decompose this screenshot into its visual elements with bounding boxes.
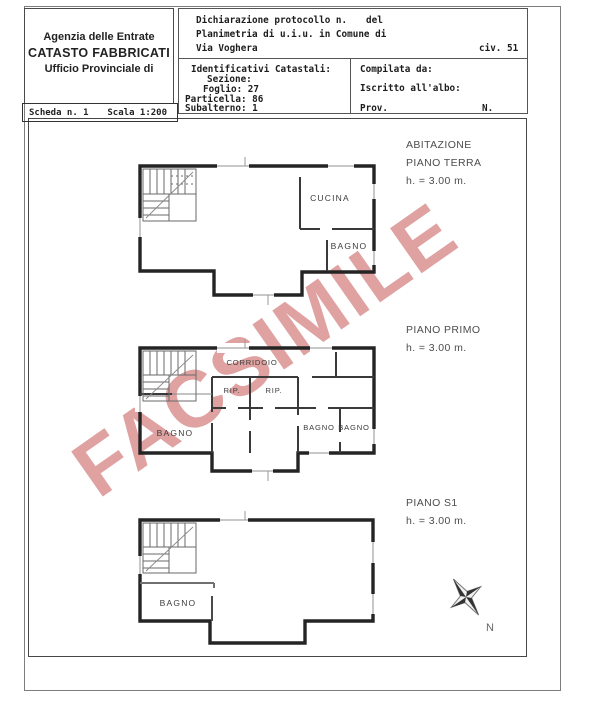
stairs-icon-s1 bbox=[143, 523, 196, 573]
office-line: Ufficio Provinciale di bbox=[25, 63, 173, 75]
room-label-rip2: RIP. bbox=[266, 386, 283, 395]
compiler-section: Compilata da: Iscritto all'albo: Prov. N… bbox=[350, 59, 527, 113]
windows-terra bbox=[135, 161, 379, 300]
floor-plan-primo: CORRIDOIO RIP. RIP. BAGNO BAGNO BAGNO bbox=[135, 339, 379, 481]
room-label-bagno-terra: BAGNO bbox=[331, 241, 368, 251]
planimetria-line: Planimetria di u.i.u. in Comune di bbox=[196, 29, 386, 40]
room-label-bagno-s1: BAGNO bbox=[160, 598, 197, 608]
scheda-number: Scheda n. 1 bbox=[23, 108, 89, 118]
north-label: N bbox=[486, 622, 494, 634]
room-label-corridoio: CORRIDOIO bbox=[226, 358, 277, 367]
section-ticks-terra bbox=[245, 157, 268, 305]
agency-name: Agenzia delle Entrate bbox=[25, 31, 173, 43]
caption-piano-s1: PIANO S1 bbox=[406, 497, 458, 509]
protocol-del: del bbox=[366, 15, 383, 26]
room-label-bagno-mid: BAGNO bbox=[303, 423, 334, 432]
cadastral-ids-section: Identificativi Catastali: Sezione: Fogli… bbox=[179, 59, 351, 113]
caption-piano-terra: PIANO TERRA bbox=[406, 157, 481, 169]
civic-number: civ. 51 bbox=[479, 43, 518, 54]
protocol-section: Dichiarazione protocollo n. del Planimet… bbox=[179, 9, 527, 59]
scheda-box: Scheda n. 1 Scala 1:200 bbox=[22, 103, 178, 122]
room-label-rip1: RIP. bbox=[224, 386, 241, 395]
n-label: N. bbox=[482, 103, 493, 114]
stairs-icon-terra bbox=[143, 169, 196, 221]
subalterno-field: Subalterno: 1 bbox=[185, 103, 258, 114]
street-name: Via Voghera bbox=[196, 43, 258, 54]
floor-plan-terra: CUCINA BAGNO bbox=[135, 157, 379, 305]
cadastral-sheet: FACSIMILE Agenzia delle Entrate CATASTO … bbox=[0, 0, 600, 714]
floor-plan-s1: BAGNO bbox=[135, 511, 378, 643]
room-label-bagno-left: BAGNO bbox=[157, 428, 194, 438]
agency-header-box: Agenzia delle Entrate CATASTO FABBRICATI… bbox=[24, 8, 174, 104]
iscritto-label: Iscritto all'albo: bbox=[360, 83, 461, 94]
compilata-label: Compilata da: bbox=[360, 64, 433, 75]
catasto-title: CATASTO FABBRICATI bbox=[25, 46, 173, 60]
protocol-declaration: Dichiarazione protocollo n. bbox=[196, 15, 347, 26]
room-label-cucina: CUCINA bbox=[310, 193, 350, 203]
caption-terra-height: h. = 3.00 m. bbox=[406, 175, 467, 187]
caption-piano-primo: PIANO PRIMO bbox=[406, 324, 480, 336]
protocol-box: Dichiarazione protocollo n. del Planimet… bbox=[178, 8, 528, 114]
room-label-bagno-right: BAGNO bbox=[338, 423, 369, 432]
prov-label: Prov. bbox=[360, 103, 388, 114]
compass-icon bbox=[439, 569, 494, 626]
scale-value: Scala 1:200 bbox=[107, 108, 177, 118]
caption-abitazione: ABITAZIONE bbox=[406, 139, 472, 151]
caption-s1-height: h. = 3.00 m. bbox=[406, 515, 467, 527]
interior-walls-terra bbox=[300, 177, 374, 271]
caption-primo-height: h. = 3.00 m. bbox=[406, 342, 467, 354]
